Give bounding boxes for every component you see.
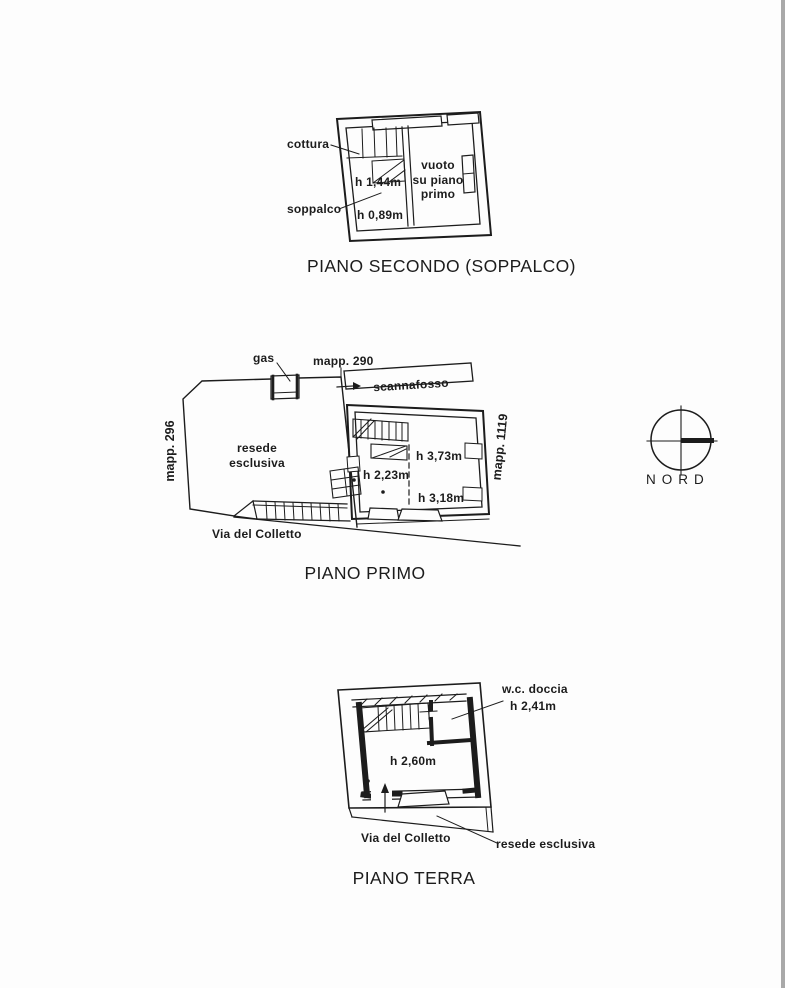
leader-line-gas <box>277 363 290 381</box>
window-sill <box>398 791 449 807</box>
label-soppalco: soppalco <box>287 202 341 217</box>
ext-stair-tread <box>311 503 312 520</box>
balcony-grid-line <box>344 469 347 496</box>
ext-stair-tread <box>275 502 276 519</box>
title-piano-primo: PIANO PRIMO <box>298 563 432 584</box>
ext-stair-tread <box>329 504 330 521</box>
label-resede-line1: resede <box>216 441 298 456</box>
label-mapp-290: mapp. 290 <box>313 354 374 369</box>
compass-rose <box>647 406 717 474</box>
ext-stair-tread <box>266 502 267 519</box>
gas-box <box>271 375 299 399</box>
label-vuoto: vuoto su piano primo <box>407 158 469 202</box>
stair-tread <box>374 128 375 157</box>
landing-diagonal <box>390 449 406 457</box>
stair-tread <box>410 704 411 729</box>
gas-box-line <box>273 392 297 393</box>
label-height-373: h 3,73m <box>416 449 462 464</box>
stair-diagonal <box>362 708 388 730</box>
bottom-wall-solid <box>465 790 476 791</box>
label-height-089: h 0,89m <box>357 208 403 223</box>
resede-strip-edge <box>349 808 352 817</box>
resede-strip-edge <box>352 817 493 832</box>
wc-wall <box>429 740 471 743</box>
stair-tread <box>362 129 363 158</box>
stair-tread <box>418 704 419 729</box>
label-height-144: h 1,44m <box>355 175 401 190</box>
door-hinge-dot <box>352 478 356 482</box>
ext-stair-edge <box>253 505 347 508</box>
window-sill <box>368 508 399 520</box>
label-vuoto-line3: primo <box>407 187 469 202</box>
label-wc-doccia: w.c. doccia <box>502 682 568 697</box>
label-resede-esclusiva: resede esclusiva <box>216 441 298 470</box>
label-resede-line2: esclusiva <box>216 456 298 471</box>
stair-tread <box>396 127 397 156</box>
door-opening <box>371 786 392 804</box>
bottom-wall-solid <box>363 795 370 796</box>
label-mapp-296: mapp. 296 <box>163 420 177 481</box>
ext-stair-wedge <box>234 501 257 519</box>
ext-stair-tread <box>320 504 321 520</box>
left-wall-solid <box>359 705 367 795</box>
stair-tread <box>378 706 379 731</box>
label-height-223: h 2,23m <box>363 468 409 483</box>
wc-wall <box>431 719 432 744</box>
title-piano-terra: PIANO TERRA <box>343 868 485 889</box>
stair-tread <box>402 705 403 730</box>
stair-tread <box>386 128 387 157</box>
label-height-260: h 2,60m <box>390 754 436 769</box>
label-height-241: h 2,41m <box>510 699 556 714</box>
window-opening <box>372 116 442 130</box>
label-street-primo: Via del Colletto <box>212 527 302 542</box>
ext-stair-tread <box>293 503 294 520</box>
label-nord: NORD <box>646 472 710 487</box>
compass-east-bar <box>681 438 714 443</box>
resede-strip-edge <box>486 808 488 831</box>
ext-stair-tread <box>338 504 339 521</box>
scannafosso-arrow <box>337 386 353 387</box>
label-street-terra: Via del Colletto <box>361 831 451 846</box>
scan-edge-strip <box>781 0 785 988</box>
window-recess <box>465 443 482 459</box>
right-wall-solid <box>470 700 478 795</box>
title-piano-secondo: PIANO SECONDO (SOPPALCO) <box>307 256 569 277</box>
window-sill <box>398 509 442 521</box>
ext-stair-edge <box>253 501 347 504</box>
window-recess <box>463 487 482 501</box>
door-hinge-dot <box>366 779 370 783</box>
resede-strip-edge <box>491 807 493 832</box>
label-gas: gas <box>253 351 274 366</box>
leader-line-cottura <box>331 145 359 154</box>
leader-line-wc <box>452 701 503 719</box>
label-cottura: cottura <box>287 137 329 152</box>
stair-tread <box>394 705 395 730</box>
scanned-floorplan-page: cottura soppalco h 1,44m h 0,89m vuoto s… <box>0 0 785 988</box>
label-height-318: h 3,18m <box>418 491 464 506</box>
label-resede-terra: resede esclusiva <box>496 837 595 852</box>
ext-stair-tread <box>302 503 303 520</box>
label-vuoto-line2: su piano <box>407 173 469 188</box>
label-vuoto-line1: vuoto <box>407 158 469 173</box>
point-marker <box>381 490 385 494</box>
window-opening <box>447 113 479 125</box>
